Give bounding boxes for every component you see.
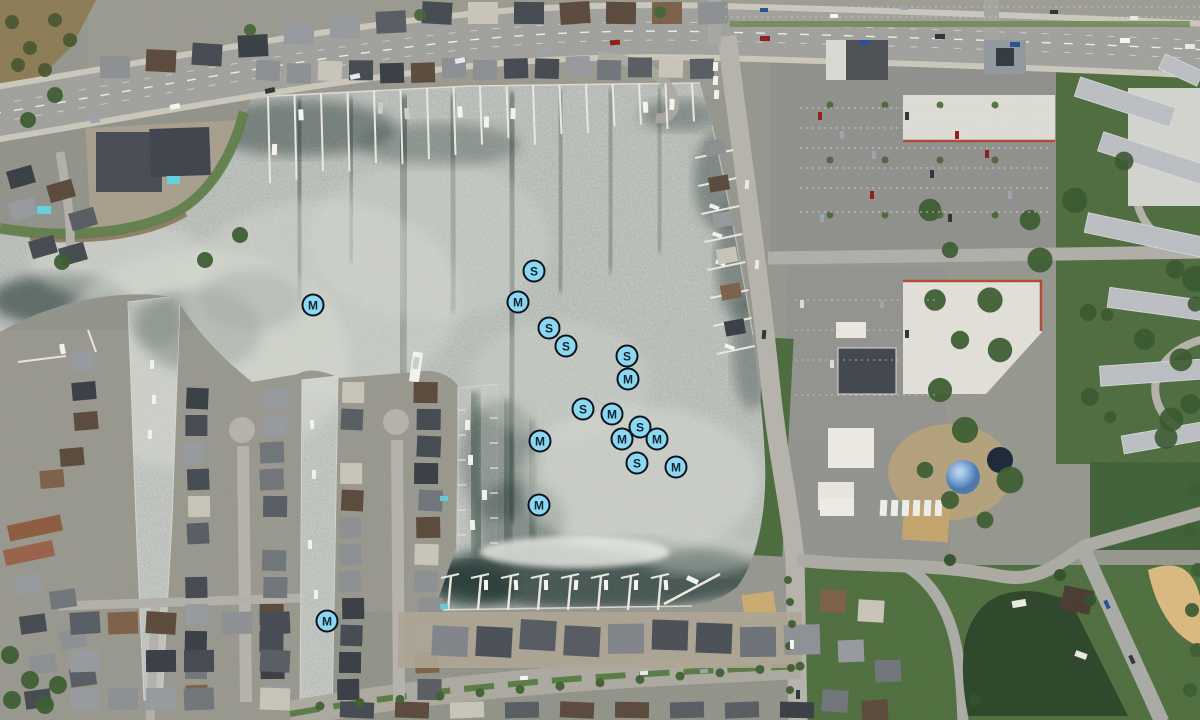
map-marker-m[interactable]: M bbox=[646, 428, 669, 451]
map-marker-s[interactable]: S bbox=[616, 345, 639, 368]
marker-label: S bbox=[633, 457, 641, 469]
map-marker-m[interactable]: M bbox=[302, 294, 325, 317]
markers-layer: MSMSSSMSMSMMMSMMM bbox=[0, 0, 1200, 720]
map-marker-s[interactable]: S bbox=[572, 398, 595, 421]
map-marker-s[interactable]: S bbox=[555, 335, 578, 358]
marker-label: S bbox=[623, 350, 631, 362]
map-marker-s[interactable]: S bbox=[626, 452, 649, 475]
marker-label: M bbox=[513, 296, 523, 308]
map-marker-m[interactable]: M bbox=[528, 494, 551, 517]
marker-label: M bbox=[607, 408, 617, 420]
map-marker-m[interactable]: M bbox=[617, 368, 640, 391]
map-marker-m[interactable]: M bbox=[529, 430, 552, 453]
map-marker-m[interactable]: M bbox=[507, 291, 530, 314]
marker-label: S bbox=[636, 421, 644, 433]
map-marker-m[interactable]: M bbox=[316, 610, 339, 633]
map-marker-m[interactable]: M bbox=[665, 456, 688, 479]
marker-label: M bbox=[322, 615, 332, 627]
marker-label: M bbox=[534, 499, 544, 511]
marker-label: M bbox=[308, 299, 318, 311]
map-marker-m[interactable]: M bbox=[601, 403, 624, 426]
marker-label: M bbox=[617, 433, 627, 445]
marker-label: S bbox=[579, 403, 587, 415]
marker-label: S bbox=[545, 322, 553, 334]
map-marker-m[interactable]: M bbox=[611, 428, 634, 451]
map-marker-s[interactable]: S bbox=[538, 317, 561, 340]
map-marker-s[interactable]: S bbox=[523, 260, 546, 283]
satellite-map[interactable]: MSMSSSMSMSMMMSMMM bbox=[0, 0, 1200, 720]
marker-label: M bbox=[671, 461, 681, 473]
marker-label: M bbox=[535, 435, 545, 447]
marker-label: M bbox=[652, 433, 662, 445]
marker-label: S bbox=[530, 265, 538, 277]
marker-label: S bbox=[562, 340, 570, 352]
marker-label: M bbox=[623, 373, 633, 385]
